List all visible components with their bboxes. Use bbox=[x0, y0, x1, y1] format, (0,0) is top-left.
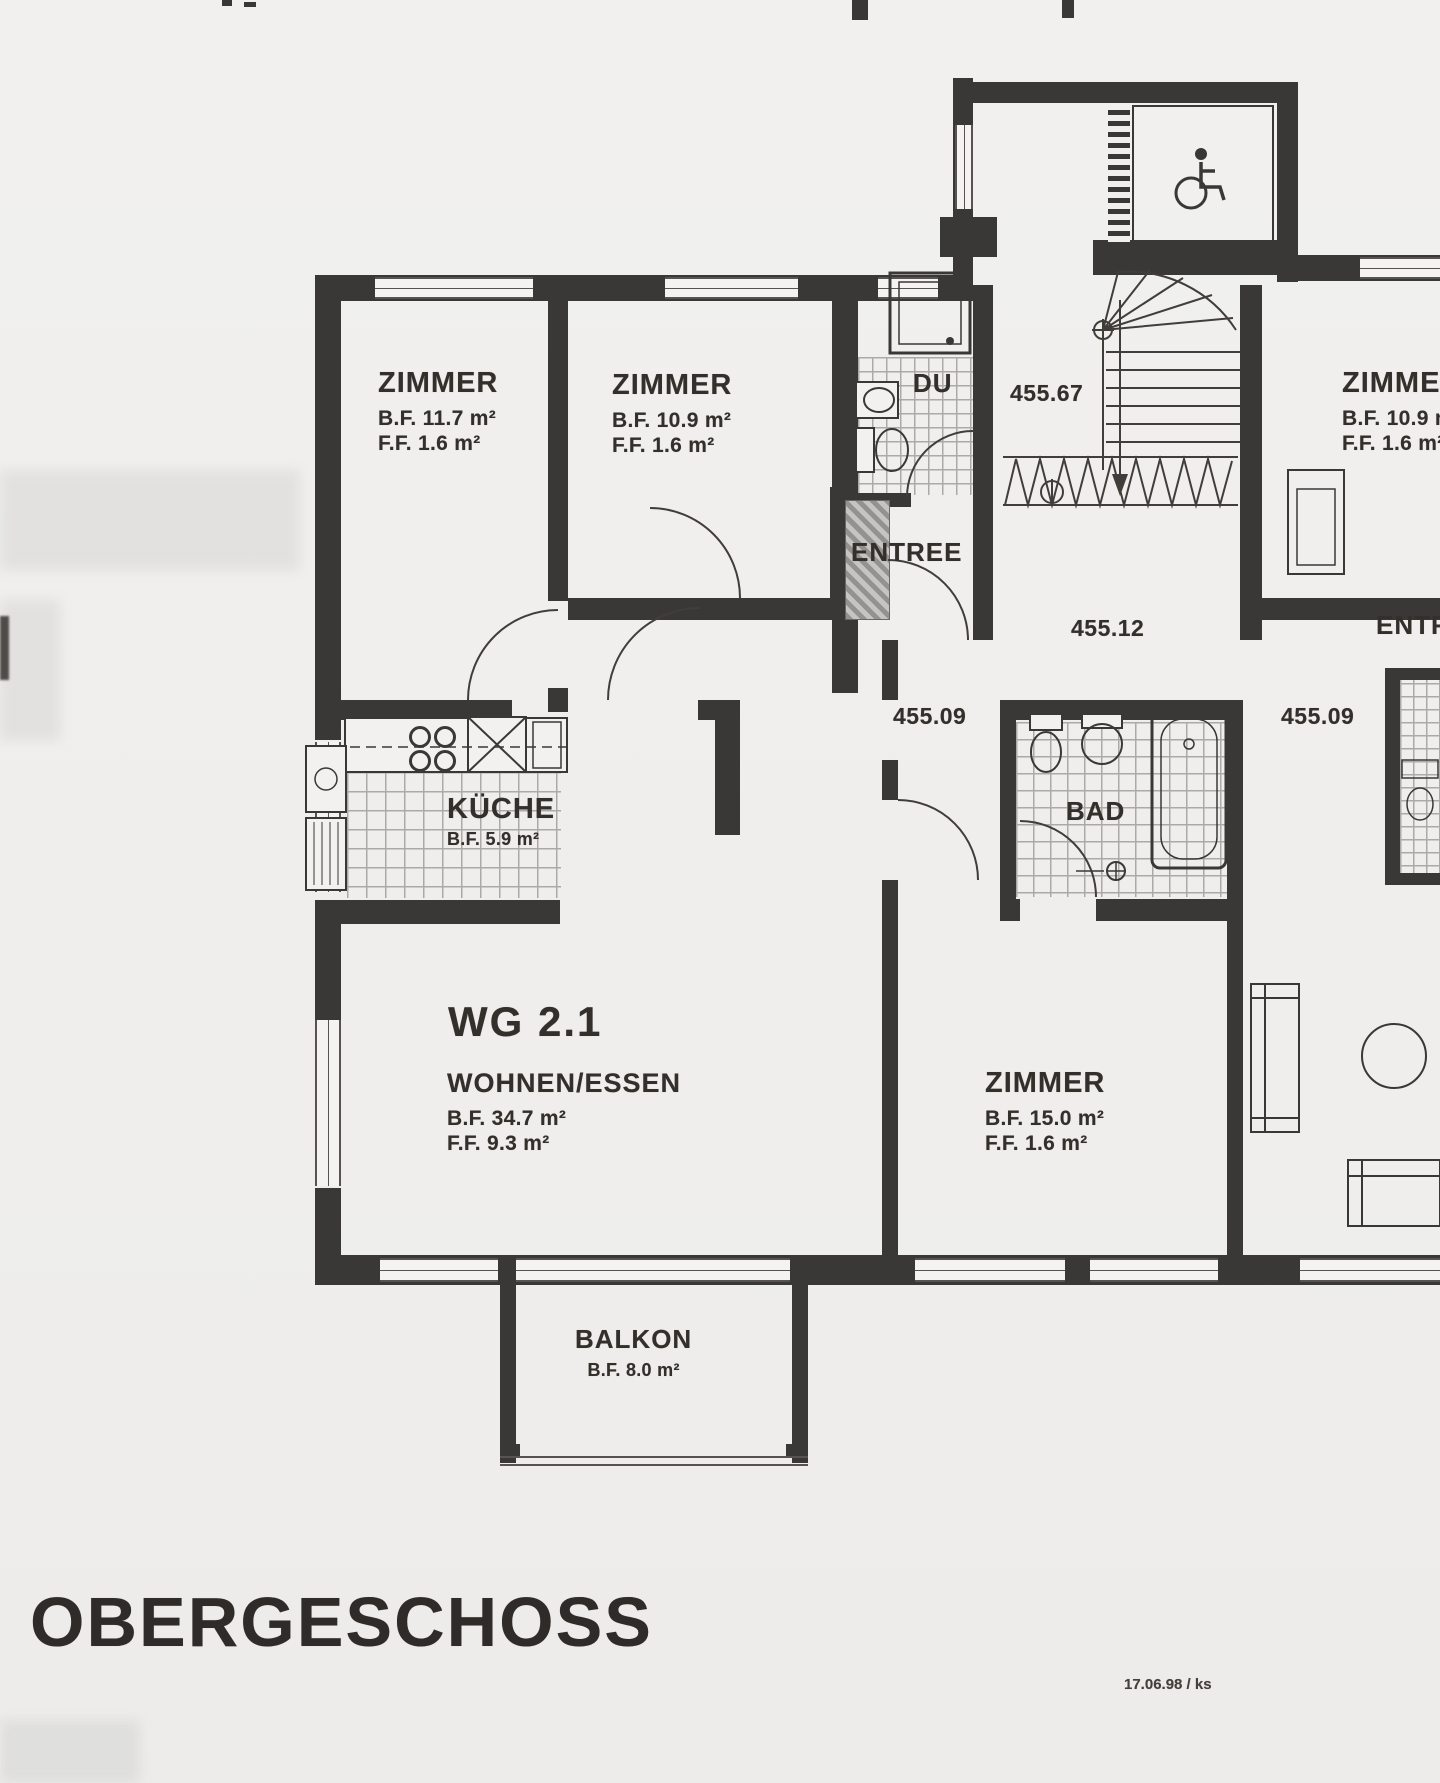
sheet-title: OBERGESCHOSS bbox=[30, 1582, 653, 1662]
room-label-entree-east: ENTREE bbox=[1376, 610, 1440, 641]
room-name: ZIMMER bbox=[612, 370, 732, 401]
room-name: ZIMMER bbox=[985, 1068, 1105, 1099]
bad-fixtures bbox=[1030, 710, 1226, 880]
elevation-stairwell: 455.67 bbox=[1010, 380, 1083, 407]
room-name: BALKON bbox=[575, 1324, 692, 1355]
plan-linework bbox=[0, 0, 1440, 1783]
room-area-bf: B.F. 8.0 m² bbox=[575, 1358, 692, 1383]
scan-artifact bbox=[0, 616, 9, 680]
room-label-zimmer-n: ZIMMER B.F. 10.9 m² F.F. 1.6 m² bbox=[612, 370, 732, 458]
room-name: ZIMMER bbox=[378, 368, 498, 399]
room-area-bf: B.F. 10.9 m² bbox=[1342, 406, 1440, 431]
floor-plan-sheet: ZIMMER B.F. 11.7 m² F.F. 1.6 m² ZIMMER B… bbox=[0, 0, 1440, 1783]
room-area-ff: F.F. 9.3 m² bbox=[447, 1131, 681, 1156]
elevation-hall: 455.12 bbox=[1071, 615, 1144, 642]
room-name: WOHNEN/ESSEN bbox=[447, 1068, 681, 1099]
room-label-zimmer-nw: ZIMMER B.F. 11.7 m² F.F. 1.6 m² bbox=[378, 368, 498, 456]
room-name: KÜCHE bbox=[447, 794, 555, 825]
door-arcs bbox=[468, 431, 1096, 897]
room-label-kueche: KÜCHE B.F. 5.9 m² bbox=[447, 794, 555, 852]
elevation-threshold-west: 455.09 bbox=[893, 703, 966, 730]
date-stamp: 17.06.98 / ks bbox=[1124, 1676, 1212, 1693]
elevator bbox=[1133, 106, 1273, 242]
room-area-bf: B.F. 15.0 m² bbox=[985, 1106, 1105, 1131]
room-label-wohnen-essen: WOHNEN/ESSEN B.F. 34.7 m² F.F. 9.3 m² bbox=[447, 1068, 681, 1156]
room-area-bf: B.F. 5.9 m² bbox=[447, 827, 555, 852]
elevation-threshold-east: 455.09 bbox=[1281, 703, 1354, 730]
du-fixtures bbox=[856, 382, 908, 472]
east-shaft-fixtures bbox=[1402, 760, 1438, 820]
room-label-bad: BAD bbox=[1066, 796, 1125, 827]
wheelchair-icon bbox=[1176, 148, 1224, 208]
room-area-ff: F.F. 1.6 m² bbox=[985, 1131, 1105, 1156]
shower-tray bbox=[890, 273, 970, 353]
room-area-ff: F.F. 1.6 m² bbox=[378, 431, 498, 456]
room-label-balkon: BALKON B.F. 8.0 m² bbox=[575, 1324, 692, 1383]
room-area-ff: F.F. 1.6 m² bbox=[1342, 431, 1440, 456]
room-name: ZIMMER bbox=[1342, 368, 1440, 399]
room-label-entree-west: ENTREE bbox=[851, 537, 962, 568]
room-label-zimmer-e: ZIMMER B.F. 10.9 m² F.F. 1.6 m² bbox=[1342, 368, 1440, 456]
room-label-du: DU bbox=[913, 368, 953, 399]
room-area-bf: B.F. 11.7 m² bbox=[378, 406, 498, 431]
living-east-furniture bbox=[1251, 984, 1440, 1226]
room-area-ff: F.F. 1.6 m² bbox=[612, 433, 732, 458]
room-area-bf: B.F. 10.9 m² bbox=[612, 408, 732, 433]
room-area-bf: B.F. 34.7 m² bbox=[447, 1106, 681, 1131]
bedroom-east-furniture bbox=[1288, 470, 1344, 574]
apartment-id-label: WG 2.1 bbox=[448, 998, 602, 1046]
room-label-zimmer-mid: ZIMMER B.F. 15.0 m² F.F. 1.6 m² bbox=[985, 1068, 1105, 1156]
